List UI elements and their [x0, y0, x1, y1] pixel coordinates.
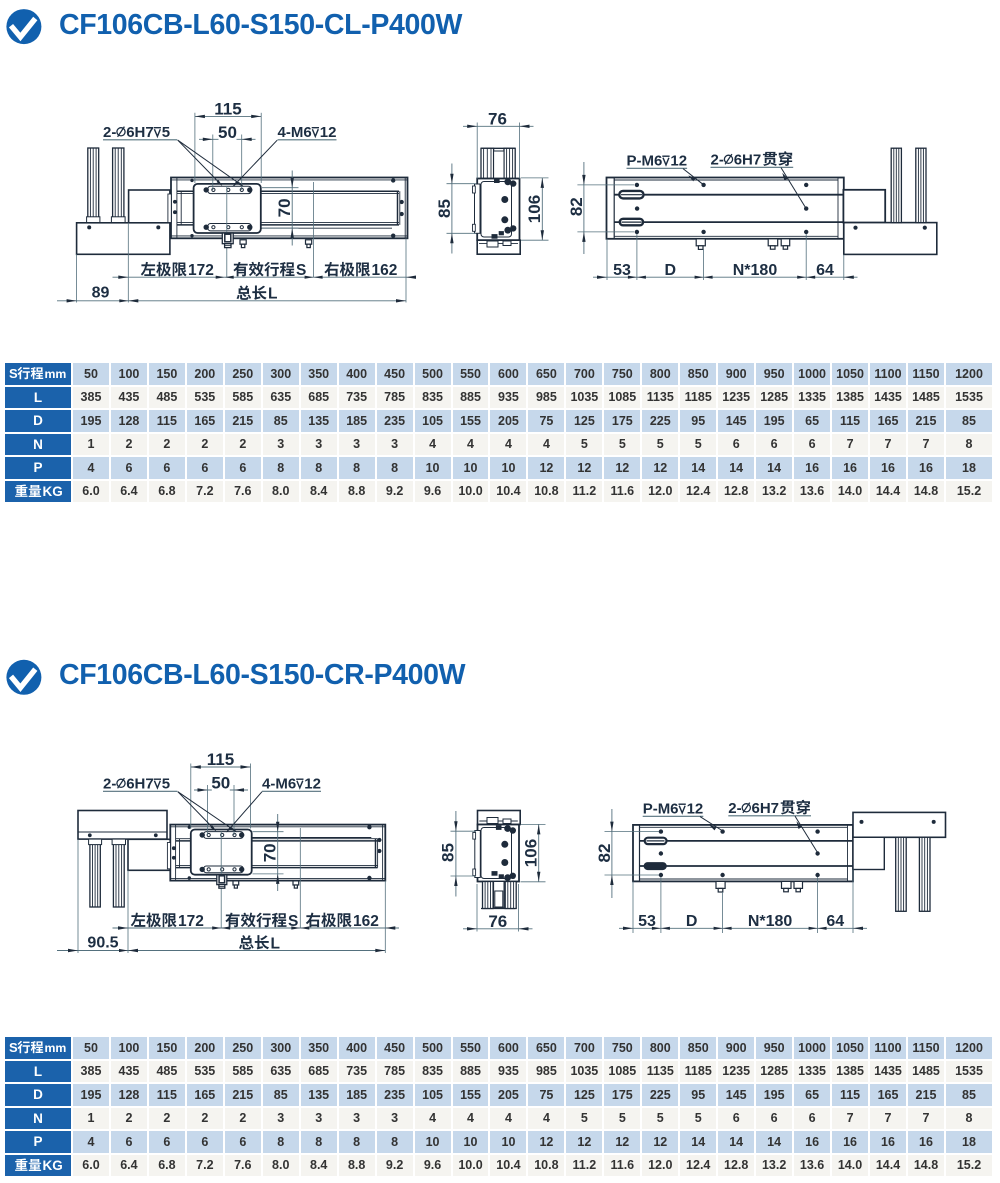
svg-text:12: 12 [320, 124, 337, 141]
svg-text:50: 50 [218, 123, 237, 142]
svg-text:76: 76 [488, 109, 507, 128]
svg-text:4-M6: 4-M6 [262, 776, 296, 793]
svg-text:162: 162 [353, 913, 379, 930]
svg-text:2-: 2- [103, 776, 116, 793]
svg-text:N*180: N*180 [733, 262, 778, 279]
svg-text:KG: KG [43, 1158, 63, 1173]
svg-text:115: 115 [207, 750, 234, 769]
svg-text:82: 82 [567, 197, 586, 216]
svg-text:6H7: 6H7 [734, 152, 762, 169]
svg-text:172: 172 [188, 262, 214, 279]
svg-text:mm: mm [44, 1041, 66, 1055]
svg-text:KG: KG [43, 484, 63, 499]
svg-text:64: 64 [816, 262, 834, 279]
svg-text:5: 5 [162, 124, 170, 141]
svg-text:53: 53 [613, 262, 631, 279]
svg-text:53: 53 [638, 913, 656, 930]
svg-text:82: 82 [595, 844, 614, 863]
svg-text:70: 70 [261, 843, 280, 862]
svg-text:162: 162 [372, 262, 398, 279]
svg-text:S: S [9, 1040, 18, 1055]
svg-text:70: 70 [275, 198, 294, 217]
svg-text:85: 85 [439, 843, 458, 862]
svg-text:P-M6: P-M6 [627, 153, 663, 170]
svg-text:6H7: 6H7 [752, 800, 780, 817]
svg-text:2-: 2- [728, 800, 741, 817]
svg-text:106: 106 [522, 839, 541, 867]
svg-text:2-: 2- [711, 152, 724, 169]
svg-text:90.5: 90.5 [87, 934, 118, 951]
svg-text:S: S [288, 913, 298, 930]
svg-text:50: 50 [211, 774, 230, 793]
svg-text:N*180: N*180 [748, 913, 793, 930]
svg-text:85: 85 [435, 199, 454, 218]
svg-text:D: D [686, 913, 698, 930]
svg-text:76: 76 [488, 912, 507, 931]
svg-text:12: 12 [687, 801, 704, 818]
svg-text:S: S [9, 366, 18, 381]
svg-text:106: 106 [525, 195, 544, 223]
svg-text:89: 89 [92, 285, 110, 302]
svg-text:5: 5 [162, 776, 170, 793]
svg-text:L: L [268, 286, 277, 303]
svg-text:6H7: 6H7 [126, 776, 154, 793]
svg-text:P-M6: P-M6 [643, 801, 679, 818]
svg-text:S: S [296, 262, 306, 279]
svg-text:mm: mm [44, 367, 66, 381]
svg-text:12: 12 [670, 153, 687, 170]
svg-text:115: 115 [214, 99, 241, 118]
svg-text:L: L [271, 935, 280, 952]
svg-text:2-: 2- [103, 124, 116, 141]
svg-text:172: 172 [178, 913, 204, 930]
svg-text:64: 64 [826, 913, 844, 930]
svg-text:12: 12 [304, 776, 321, 793]
svg-text:4-M6: 4-M6 [278, 124, 312, 141]
svg-text:D: D [665, 262, 677, 279]
svg-text:6H7: 6H7 [126, 124, 154, 141]
